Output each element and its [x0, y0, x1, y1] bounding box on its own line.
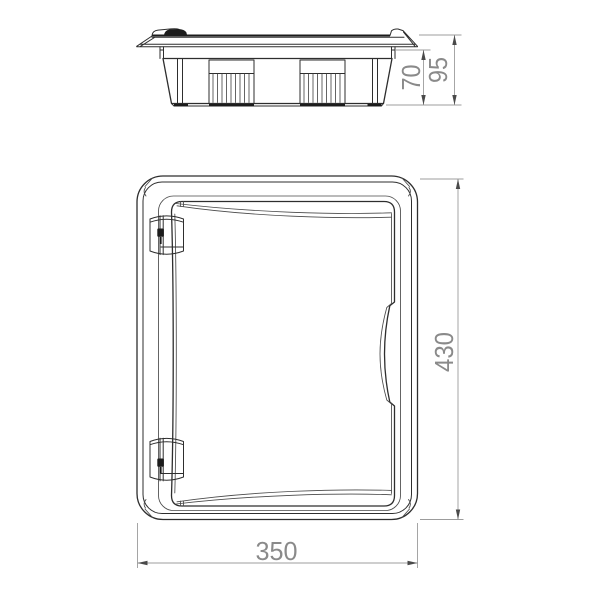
frame-lip — [160, 47, 395, 59]
extension-lines — [138, 35, 464, 568]
corner-seams — [144, 178, 410, 518]
box-inner-walls — [172, 59, 384, 107]
dim-value-box-depth: 70 — [396, 65, 426, 91]
hinge-top-clip — [157, 229, 164, 237]
dim-front-height: 430 — [429, 179, 460, 520]
arrow-up-95 — [452, 35, 456, 45]
knockout-ribs — [213, 74, 340, 103]
hinge-bottom — [150, 438, 184, 481]
arrow-down-70 — [421, 95, 425, 105]
dim-total-depth: 95 — [423, 35, 457, 105]
arrow-right-350 — [408, 561, 418, 565]
dim-value-total-depth: 95 — [423, 57, 453, 83]
dim-box-depth: 70 — [396, 50, 426, 105]
hinge-bottom-clip — [157, 459, 164, 467]
front-view — [137, 176, 418, 520]
knockout-panels — [209, 60, 345, 104]
door-face-contours — [176, 204, 392, 505]
frame-opening-edge — [159, 196, 401, 511]
dim-value-front-height: 430 — [429, 332, 459, 372]
dim-front-width: 350 — [138, 536, 418, 566]
arrow-down-430 — [456, 510, 460, 520]
enclosure-technical-drawing: 70 95 430 350 — [0, 0, 600, 600]
side-profile-view — [137, 29, 418, 106]
hinge-top-body — [150, 216, 184, 255]
dim-value-front-width: 350 — [256, 536, 298, 566]
arrow-up-430 — [456, 179, 460, 189]
door-panel — [172, 202, 395, 507]
latch-tab — [164, 29, 187, 35]
frame-outer-edge — [137, 176, 418, 520]
dimensions: 70 95 430 350 — [138, 35, 464, 568]
hinge-bottom-body — [150, 438, 184, 481]
hinge-top — [150, 216, 184, 255]
drawing-canvas: 70 95 430 350 — [0, 0, 600, 600]
door-inner-edge — [175, 214, 392, 494]
box-body — [163, 59, 392, 104]
arrow-left-350 — [138, 561, 148, 565]
arrow-down-95 — [452, 95, 456, 105]
